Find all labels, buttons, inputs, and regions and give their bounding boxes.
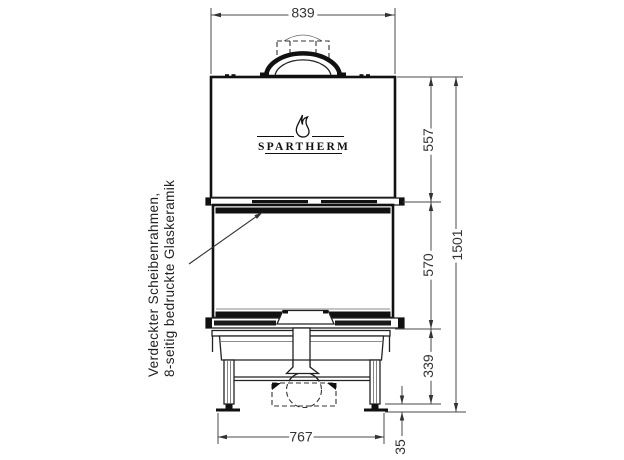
glass-frame-outline (213, 205, 393, 318)
ledge-cap-left (206, 198, 211, 205)
flue-pipe-arc (284, 35, 322, 41)
intake-clip-right (327, 383, 336, 390)
leg-left (216, 360, 240, 412)
brand-wordmark: SPARTHERM (258, 141, 350, 153)
vent-slot (252, 200, 308, 203)
dim-total-height-label: 1501 (449, 229, 465, 260)
air-intake-box-hidden (272, 383, 336, 406)
leg-left-outline (224, 360, 234, 404)
latch-mark-right (323, 311, 328, 314)
top-tab (366, 74, 370, 77)
dim-upper-height-label: 557 (420, 128, 436, 152)
foot-plate-right (364, 409, 388, 412)
glass-section (213, 205, 393, 318)
top-tab (225, 74, 229, 77)
lower-ledge-cap-left (206, 318, 212, 328)
lower-ledge-cap-right (398, 318, 404, 328)
dim-glass-height-label: 570 (420, 253, 436, 277)
column-flare (287, 360, 319, 374)
lower-ledge-bar-left (214, 321, 276, 326)
note-line-1: Verdeckter Scheibenrahmen, (146, 192, 161, 377)
fireplace-front-elevation: SPARTHERM (0, 0, 624, 460)
dimension-base-width: 767 (218, 413, 384, 445)
dimension-foot-height: 35 (392, 386, 408, 455)
printed-glass-border-top (216, 208, 391, 214)
vent-slot (321, 200, 377, 203)
leg-right (364, 360, 388, 412)
dimension-section-heights: 557 570 339 (420, 77, 436, 404)
note-line-2: 8-seitig bedruckte Glaskeramik (162, 180, 177, 377)
dim-foot-height-label: 35 (392, 439, 408, 455)
pedestal (212, 328, 390, 412)
dim-base-height-label: 339 (420, 354, 436, 378)
leg-right-outline (370, 360, 380, 404)
dim-base-width-label: 767 (289, 429, 313, 445)
foot-left (226, 404, 233, 409)
foot-plate-left (216, 409, 240, 412)
upper-body: SPARTHERM (211, 74, 395, 198)
dim-top-width-label: 839 (291, 5, 315, 21)
top-tab (360, 74, 364, 77)
dimension-total-height: 1501 (449, 77, 465, 412)
top-tab (232, 74, 236, 77)
lower-ledge-bar-right (335, 321, 391, 326)
flue-collar (260, 35, 346, 77)
technical-drawing-page: SPARTHERM (0, 0, 624, 460)
intake-clip-left (272, 383, 281, 390)
latch-mark-left (283, 311, 288, 314)
foot-right (372, 404, 379, 409)
